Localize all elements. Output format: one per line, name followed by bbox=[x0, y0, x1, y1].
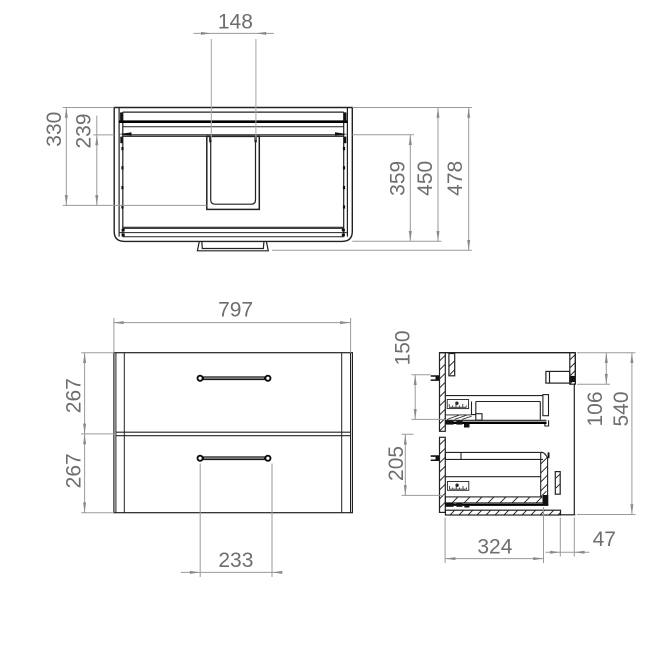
svg-text:267: 267 bbox=[62, 378, 85, 413]
svg-text:478: 478 bbox=[444, 161, 467, 196]
svg-text:797: 797 bbox=[218, 299, 253, 322]
svg-text:540: 540 bbox=[610, 391, 633, 426]
svg-text:239: 239 bbox=[73, 113, 96, 148]
svg-text:324: 324 bbox=[477, 536, 512, 559]
svg-text:150: 150 bbox=[391, 330, 414, 365]
svg-text:233: 233 bbox=[218, 549, 253, 572]
svg-text:359: 359 bbox=[387, 161, 410, 196]
svg-text:205: 205 bbox=[385, 446, 408, 481]
svg-text:47: 47 bbox=[593, 528, 616, 551]
svg-text:106: 106 bbox=[584, 391, 607, 426]
svg-text:450: 450 bbox=[414, 161, 437, 196]
svg-text:267: 267 bbox=[62, 453, 85, 488]
svg-text:330: 330 bbox=[43, 112, 66, 147]
svg-text:148: 148 bbox=[218, 11, 253, 34]
